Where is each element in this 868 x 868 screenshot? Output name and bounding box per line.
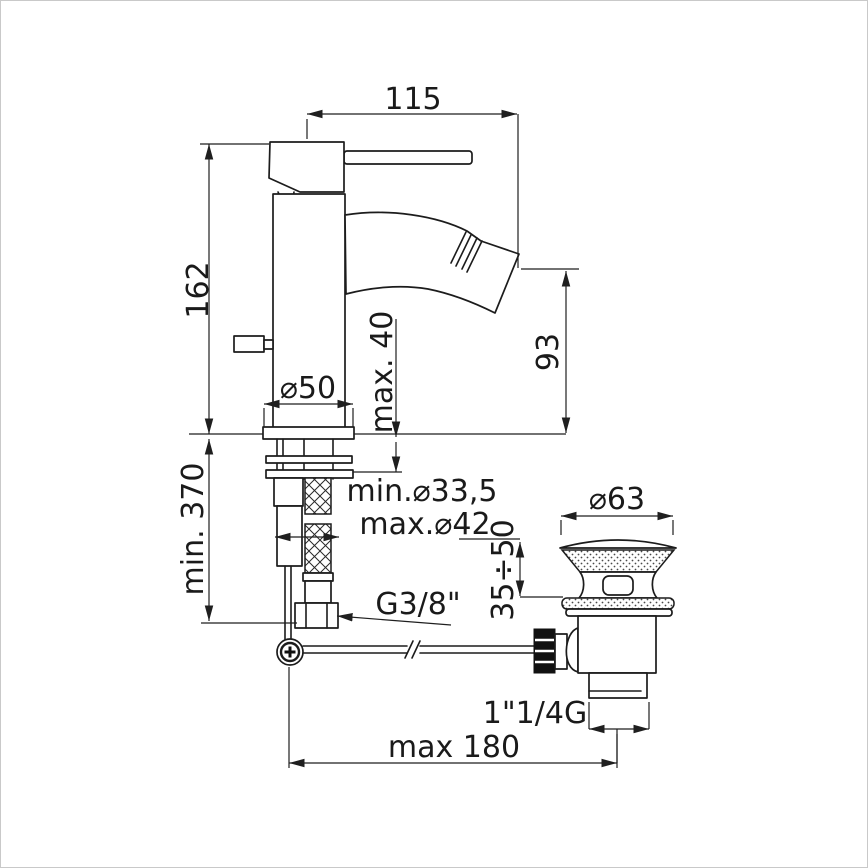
dim-deck-thickness-label: max. 40 — [365, 311, 400, 434]
drain-cap — [560, 540, 676, 548]
dim-rim-thickness-label: 35÷50 — [486, 519, 521, 620]
drain-assembly — [560, 540, 676, 698]
dim-deck-thickness: max. 40 — [353, 311, 402, 472]
base-escutcheon — [263, 427, 354, 439]
bidet-mixer-technical-drawing: 115 162 max. 40 93 min. 370 — [1, 1, 867, 867]
flange-lip — [566, 609, 672, 616]
ball-joint — [277, 639, 303, 665]
dim-hose-length-label: min. 370 — [176, 463, 211, 596]
flexible-hose — [303, 478, 333, 603]
dim-base-diameter-label: ⌀50 — [280, 371, 336, 406]
dim-waste-thread-label: 1"1/4G — [483, 696, 587, 731]
drain-side-inlet — [566, 628, 578, 672]
hose-nut — [295, 603, 338, 628]
side-knob — [234, 336, 273, 352]
lever-handle — [344, 151, 472, 164]
dim-hose-thread: G3/8" — [337, 587, 461, 625]
technical-drawing-sheet: 115 162 max. 40 93 min. 370 — [0, 0, 868, 868]
dim-body-height-label: 162 — [181, 261, 216, 318]
dim-hole-max-label: max.⌀42 — [359, 507, 490, 542]
drain-body — [578, 616, 656, 673]
drain-outlet — [589, 673, 647, 698]
dim-spout-reach-label: 115 — [384, 82, 441, 117]
dim-hose-thread-label: G3/8" — [375, 587, 460, 622]
spout — [345, 212, 519, 313]
dim-rod-reach-label: max 180 — [388, 730, 520, 765]
lower-gasket — [562, 598, 674, 609]
dim-spout-height: 93 — [531, 271, 566, 433]
horizontal-rod — [303, 641, 534, 658]
dim-hole-min-label: min.⌀33,5 — [347, 474, 498, 509]
overflow-slot — [603, 576, 633, 595]
dim-rim-thickness: 35÷50 — [486, 519, 563, 620]
dim-flange-diameter: ⌀63 — [561, 482, 673, 535]
dim-body-height: 162 — [181, 144, 269, 434]
upper-gasket — [562, 550, 674, 572]
cartridge-cap — [269, 142, 344, 192]
knurled-connector — [534, 629, 567, 673]
mounting-washers — [266, 456, 353, 478]
dim-flange-diameter-label: ⌀63 — [589, 482, 645, 517]
dim-spout-height-label: 93 — [531, 333, 566, 371]
